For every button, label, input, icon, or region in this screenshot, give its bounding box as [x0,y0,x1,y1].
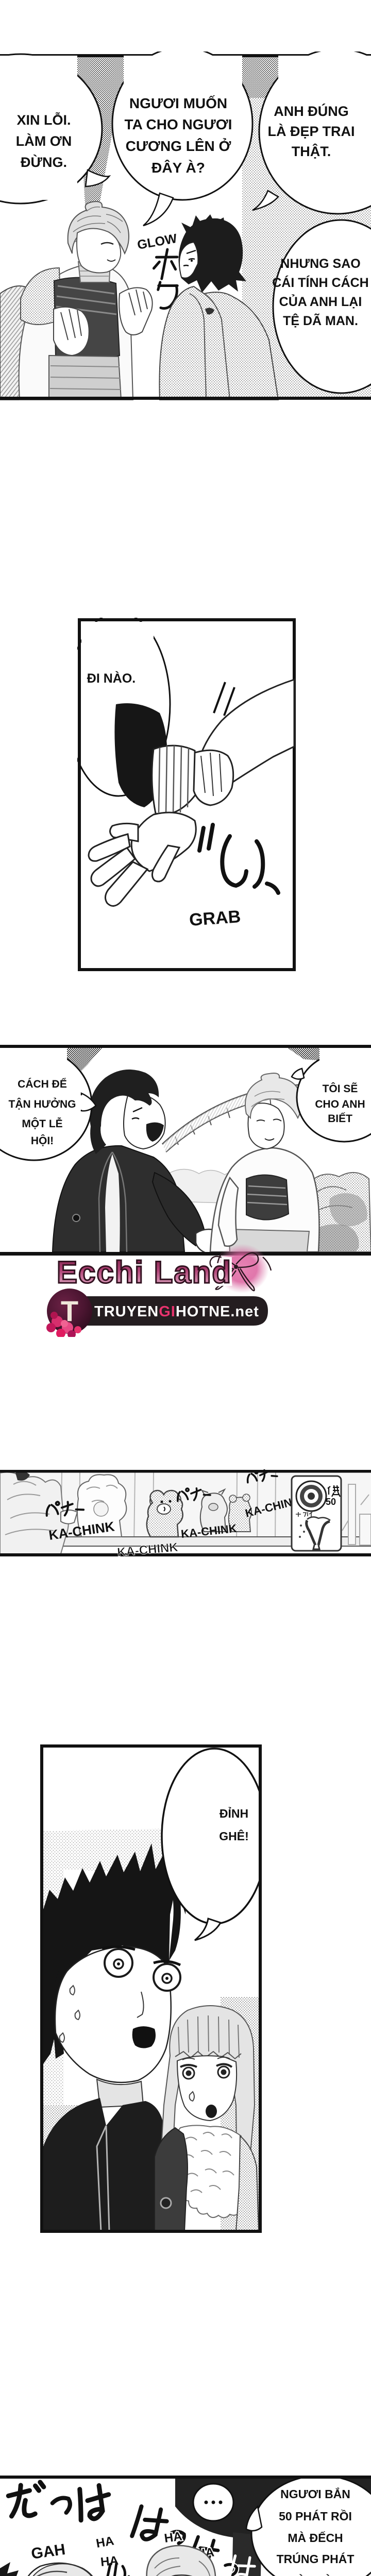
svg-text:HỘI!: HỘI! [31,1134,54,1147]
svg-text:ĐÂY À?: ĐÂY À? [151,160,205,176]
svg-text:HA: HA [163,2529,183,2546]
svg-text:50: 50 [326,1497,336,1507]
svg-text:TA CHO NGƯƠI: TA CHO NGƯƠI [125,116,232,132]
svg-text:GAH: GAH [30,2541,66,2563]
svg-text:MÀ ĐẾCH: MÀ ĐẾCH [288,2531,343,2545]
svg-text:ĐỈNH: ĐỈNH [220,1806,248,1820]
svg-text:MỘT LỄ: MỘT LỄ [22,1117,62,1130]
svg-text:CƯƠNG LÊN Ở: CƯƠNG LÊN Ở [126,138,231,154]
svg-text:GRAB: GRAB [189,907,242,930]
svg-text:HA: HA [95,2534,115,2551]
svg-text:GHÊ!: GHÊ! [219,1829,249,1843]
svg-text:TÔI SẼ: TÔI SẼ [323,1082,358,1095]
svg-text:CỦA ANH LẠI: CỦA ANH LẠI [279,294,362,309]
svg-text:CÁCH ĐỂ: CÁCH ĐỂ [18,1078,67,1090]
svg-text:XIN LỖI.: XIN LỖI. [16,112,71,128]
svg-text:ĐI NÀO.: ĐI NÀO. [87,671,136,686]
svg-text:NÀO KÌA!: NÀO KÌA! [289,2573,343,2576]
svg-text:CÁI TÍNH CÁCH: CÁI TÍNH CÁCH [272,275,369,290]
svg-text:THẬT.: THẬT. [292,143,331,159]
svg-text:GLOW: GLOW [136,231,178,252]
svg-text:TRÚNG PHÁT: TRÚNG PHÁT [277,2552,355,2566]
svg-text:Ecchi Land: Ecchi Land [57,1255,232,1290]
svg-text:TỆ DÃ MAN.: TỆ DÃ MAN. [283,313,358,328]
svg-text:LÀ ĐẸP TRAI: LÀ ĐẸP TRAI [267,123,355,139]
svg-text:TRUYENGIHOTNE.net: TRUYENGIHOTNE.net [94,1303,259,1320]
svg-text:BIẾT: BIẾT [328,1113,352,1125]
svg-text:TẬN HƯỞNG: TẬN HƯỞNG [9,1098,76,1110]
svg-text:CHO ANH: CHO ANH [315,1098,365,1110]
svg-text:NGƯƠI BẮN: NGƯƠI BẮN [280,2487,350,2501]
svg-text:LÀM ƠN: LÀM ƠN [16,133,72,149]
svg-text:NGƯƠI MUỐN: NGƯƠI MUỐN [129,95,227,111]
svg-text:ĐỪNG.: ĐỪNG. [21,154,67,170]
svg-text:50 PHÁT RỒI: 50 PHÁT RỒI [279,2509,352,2523]
svg-text:ANH ĐÚNG: ANH ĐÚNG [274,103,349,119]
svg-text:NHƯNG SAO: NHƯNG SAO [280,257,360,271]
